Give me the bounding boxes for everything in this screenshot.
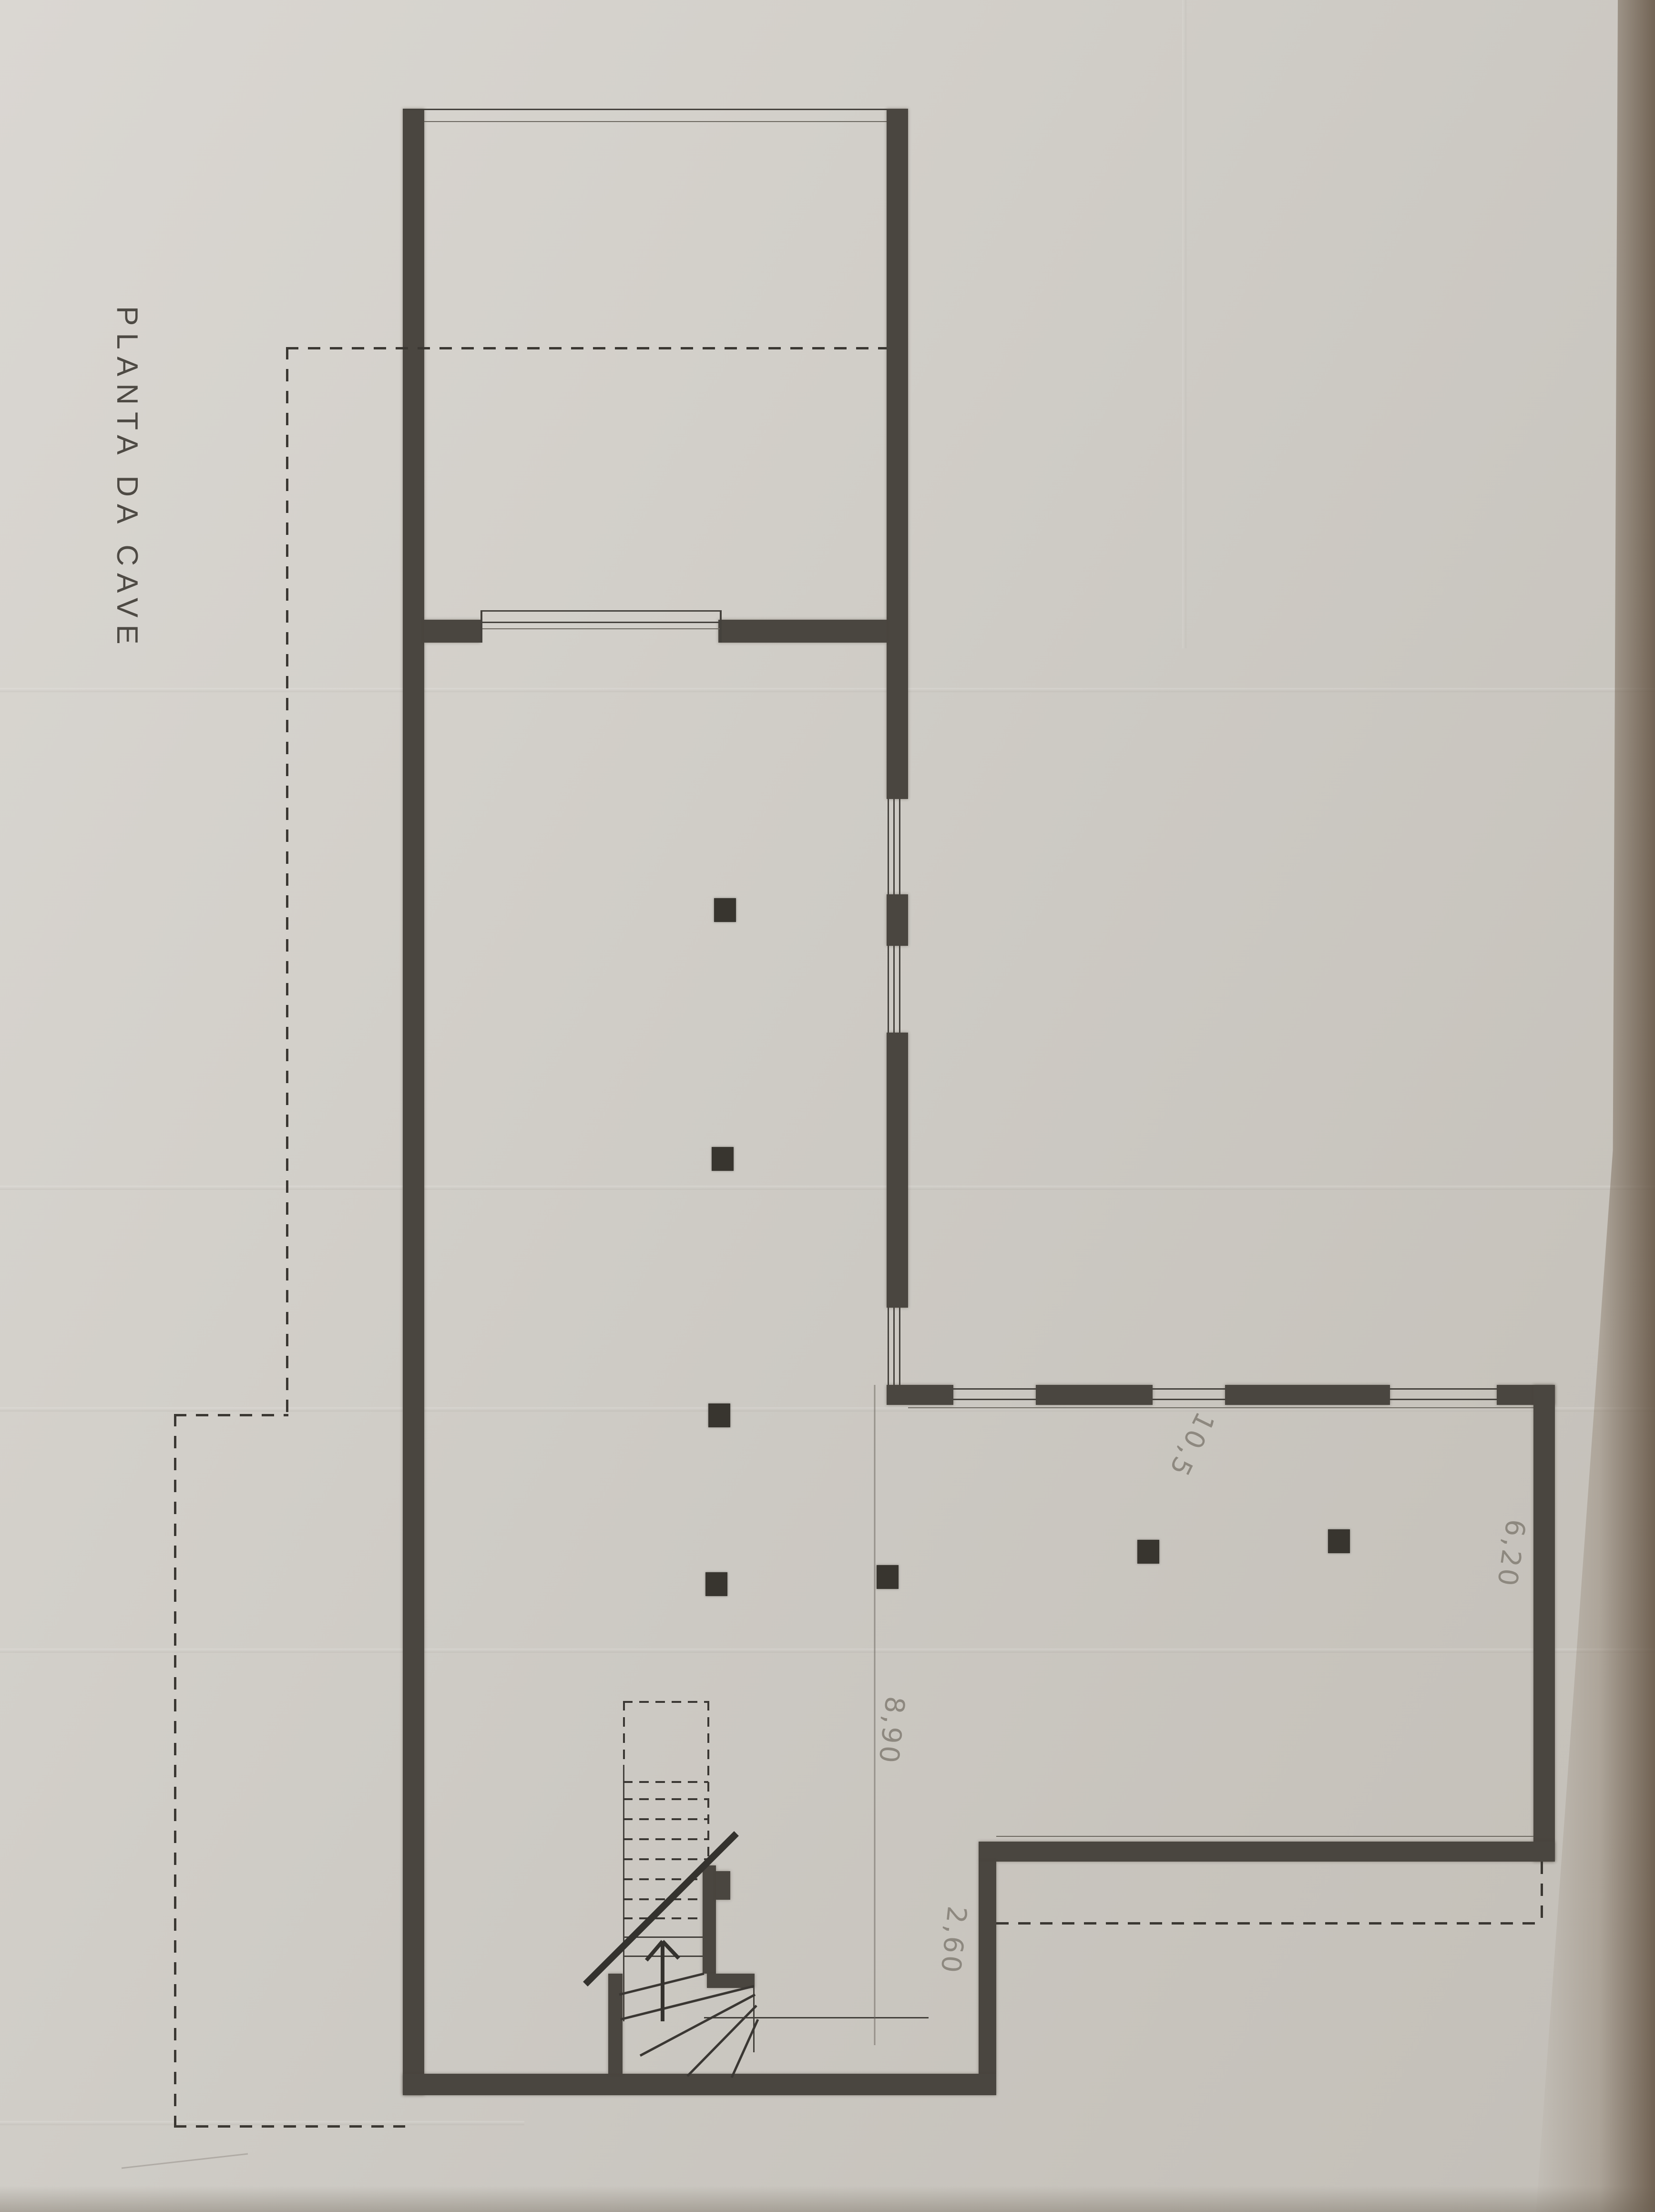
stair-annotations — [0, 0, 1655, 2212]
pencil-stray-mark — [122, 2154, 248, 2168]
scanned-page: PLANTA DA CAVE 8,90 2,60 10,5 6,20 — [0, 0, 1655, 2212]
winder-treads — [619, 1974, 758, 2078]
page-title: PLANTA DA CAVE — [110, 306, 144, 652]
photo-edge-shadow — [0, 2186, 1655, 2212]
